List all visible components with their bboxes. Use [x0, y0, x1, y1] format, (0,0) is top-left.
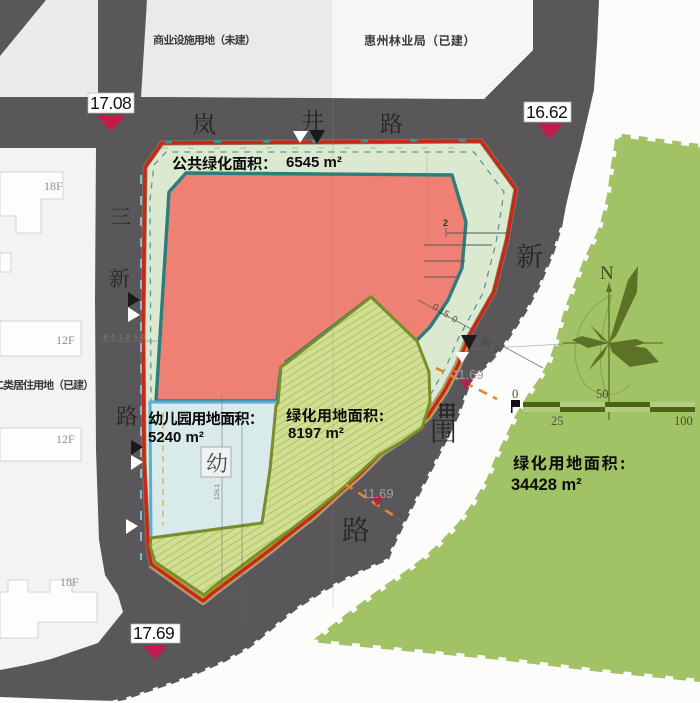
svg-text:N: N — [600, 263, 614, 284]
svg-text:17.08: 17.08 — [90, 93, 131, 113]
svg-text:5240 m²: 5240 m² — [148, 429, 204, 446]
svg-text:6545 m²: 6545 m² — [286, 154, 342, 171]
svg-text:126.1: 126.1 — [214, 483, 221, 500]
svg-text:25: 25 — [551, 414, 564, 428]
svg-text:16.62: 16.62 — [526, 102, 567, 122]
svg-text:24.0: 24.0 — [329, 111, 339, 128]
svg-text:12F: 12F — [56, 333, 75, 347]
svg-text:2: 2 — [443, 218, 448, 228]
svg-text:8197 m²: 8197 m² — [288, 425, 344, 442]
svg-text:0: 0 — [512, 387, 518, 401]
svg-text:34428 m²: 34428 m² — [511, 476, 582, 494]
svg-text:8.0 1.0 5.0: 8.0 1.0 5.0 — [104, 334, 146, 341]
svg-text:17.69: 17.69 — [133, 623, 174, 643]
svg-text:11.69: 11.69 — [362, 486, 394, 501]
svg-text:11.69: 11.69 — [452, 367, 484, 382]
svg-text:12F: 12F — [56, 432, 75, 446]
svg-text:50: 50 — [596, 387, 609, 401]
svg-text:100: 100 — [674, 414, 693, 428]
svg-text:18F: 18F — [44, 179, 63, 193]
svg-text:18F: 18F — [60, 575, 79, 589]
